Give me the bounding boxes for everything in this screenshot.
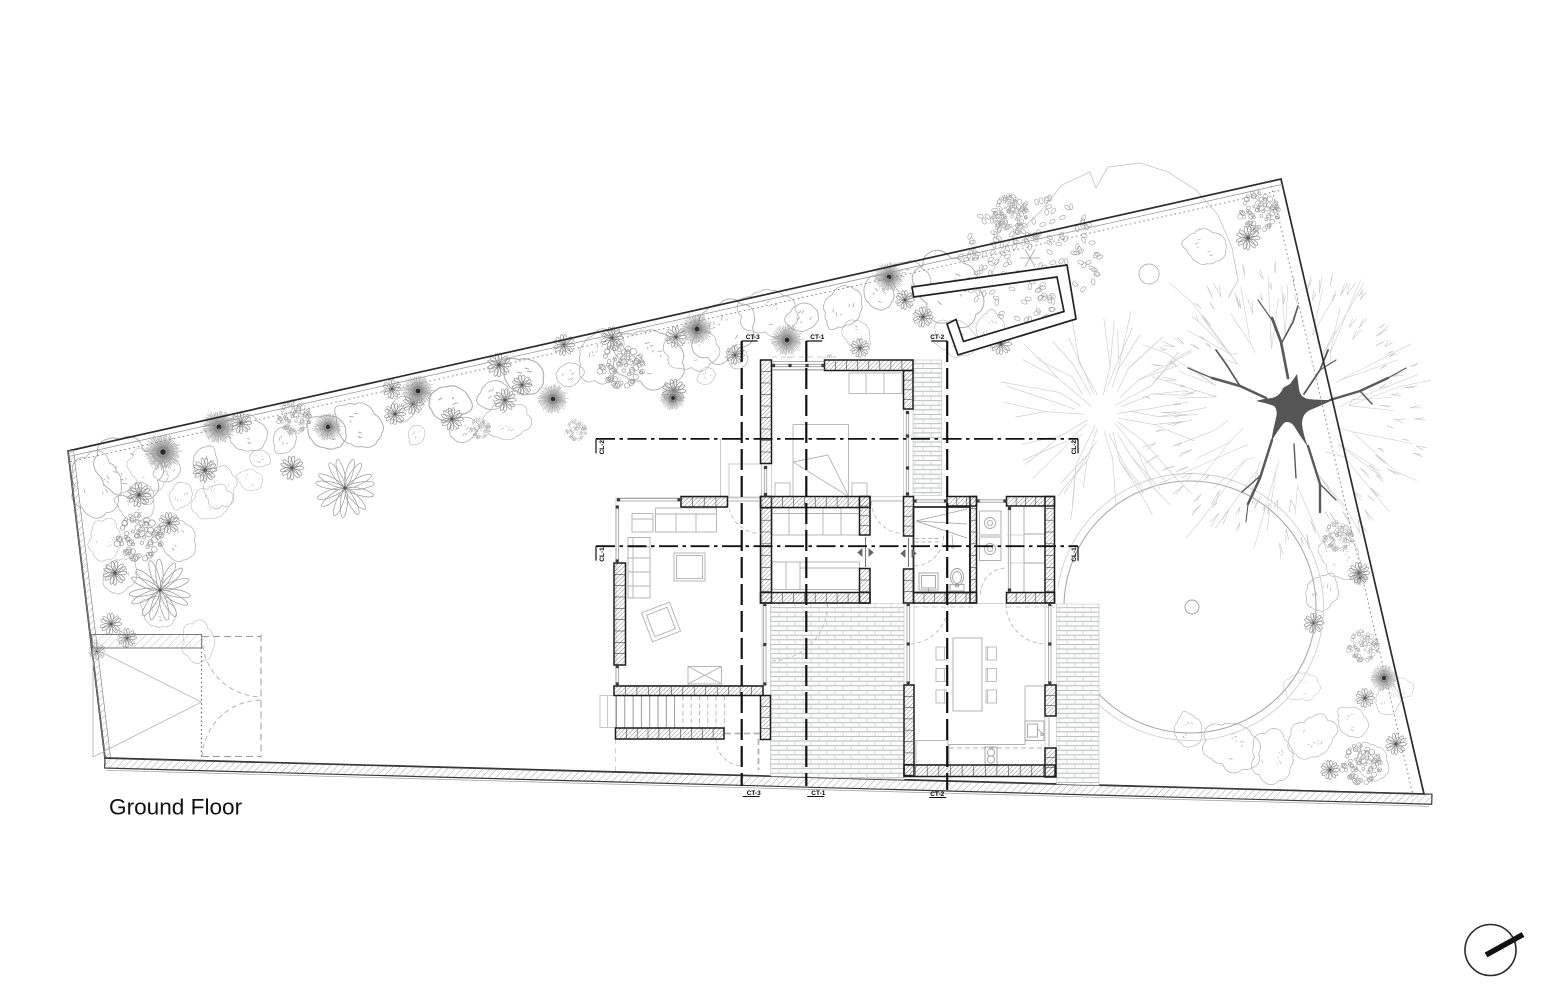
svg-text:CT-2: CT-2 bbox=[930, 334, 944, 341]
svg-text:CT-1: CT-1 bbox=[810, 334, 824, 341]
svg-text:CL-2: CL-2 bbox=[1071, 440, 1078, 455]
svg-text:Ground Floor: Ground Floor bbox=[109, 795, 243, 820]
svg-text:CL-1: CL-1 bbox=[599, 547, 606, 562]
svg-text:CL-1: CL-1 bbox=[1071, 547, 1078, 562]
svg-text:CL-2: CL-2 bbox=[599, 440, 606, 455]
svg-text:CT-3: CT-3 bbox=[746, 334, 760, 341]
